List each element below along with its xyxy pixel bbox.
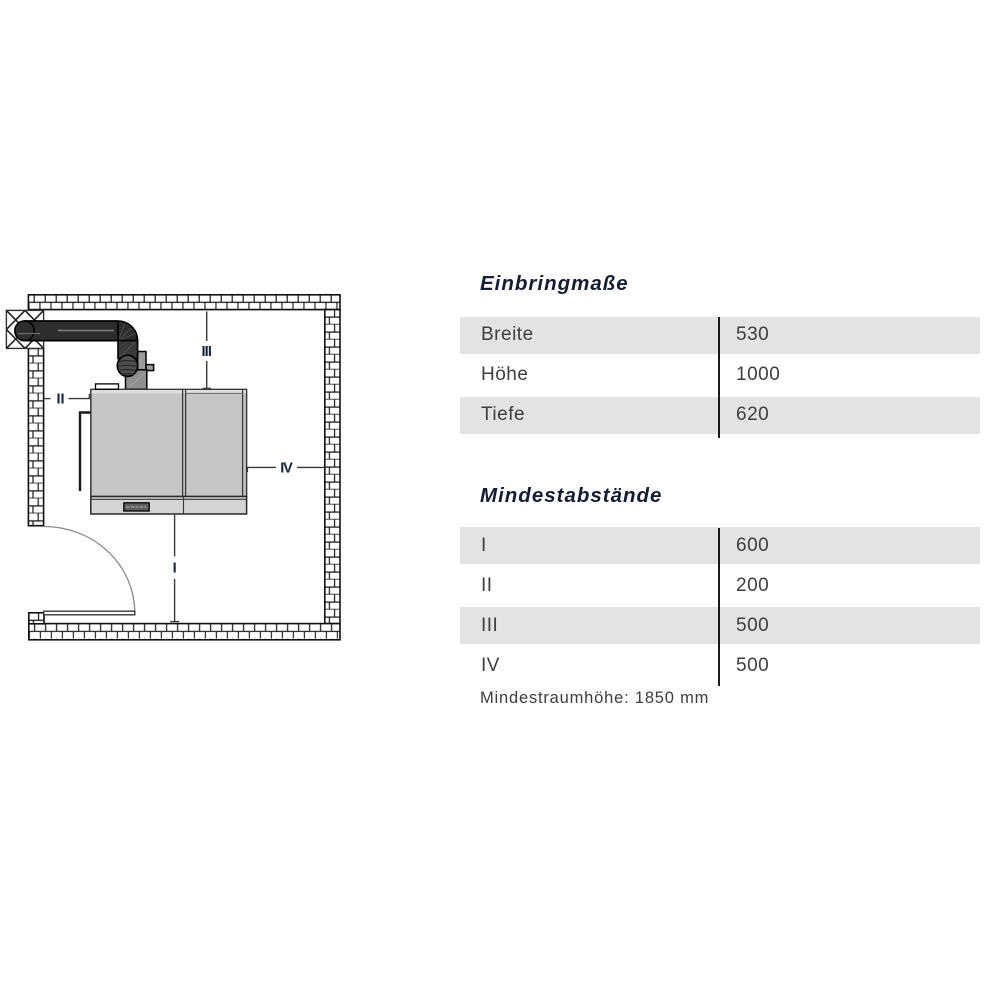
svg-text:II: II <box>57 392 65 408</box>
svg-text:I: I <box>173 560 177 576</box>
svg-text:IV: IV <box>280 460 293 476</box>
svg-text:III: III <box>202 344 212 360</box>
